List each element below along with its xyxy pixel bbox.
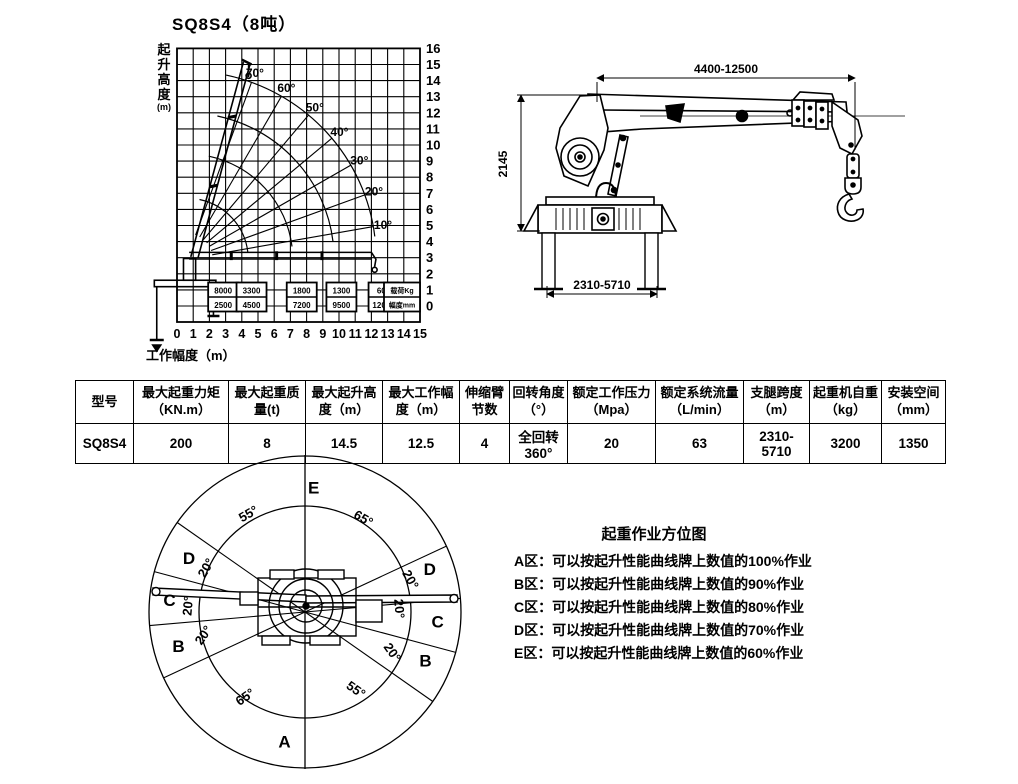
x-axis-label: 工作幅度（m） xyxy=(146,345,236,364)
chart-title: SQ8S4（8吨） xyxy=(172,10,296,35)
x-tick-label: 12 xyxy=(364,327,378,341)
x-tick-label: 10 xyxy=(332,327,346,341)
y-tick-label: 12 xyxy=(426,105,440,120)
spec-header-cell: 回转角度 （°） xyxy=(510,381,568,424)
boom-angle-label: 30° xyxy=(350,153,368,167)
zone-letter: C xyxy=(432,612,444,631)
spec-value-cell: 20 xyxy=(568,424,656,464)
boom-angle-label: 60° xyxy=(277,81,295,95)
y-tick-label: 8 xyxy=(426,170,433,185)
y-tick-label: 0 xyxy=(426,299,433,314)
x-tick-label: 7 xyxy=(287,327,294,341)
x-tick-label: 14 xyxy=(397,327,411,341)
spec-header-cell: 型号 xyxy=(76,381,134,424)
load-box: 80002500 xyxy=(208,283,238,312)
load-box: 33004500 xyxy=(237,283,267,312)
zone-letter: B xyxy=(172,637,184,656)
load-kg-value: 1300 xyxy=(333,287,351,296)
y-tick-label: 3 xyxy=(426,250,433,265)
load-box: 18007200 xyxy=(287,283,317,312)
dim-height: 2145 xyxy=(496,150,510,177)
zone-labels: EDCBADCB55°65°20°20°20°20°20°20°65°55° xyxy=(163,478,443,751)
y-tick-label: 15 xyxy=(426,57,440,72)
zone-note: B区：可以按起升性能曲线牌上数值的90%作业 xyxy=(514,573,812,596)
zone-legend-title: 起重作业方位图 xyxy=(504,523,804,544)
spec-header-cell: 安装空间 （mm） xyxy=(882,381,946,424)
radius-mm-value: 4500 xyxy=(243,301,261,310)
zone-angle-label: 55° xyxy=(236,502,261,525)
zone-letter: A xyxy=(278,732,290,751)
zone-diagram: EDCBADCB55°65°20°20°20°20°20°20°65°55° xyxy=(115,450,505,784)
y-tick-label: 13 xyxy=(426,89,440,104)
dim-boom-length: 4400-12500 xyxy=(694,62,758,76)
y-tick-label: 9 xyxy=(426,154,433,169)
x-tick-label: 5 xyxy=(255,327,262,341)
boom-angle-label: 10° xyxy=(374,218,392,232)
x-tick-label: 0 xyxy=(174,327,181,341)
y-tick-label: 7 xyxy=(426,186,433,201)
spec-header-cell: 额定工作压力 （Mpa） xyxy=(568,381,656,424)
zone-note: A区：可以按起升性能曲线牌上数值的100%作业 xyxy=(514,550,812,573)
x-tick-label: 15 xyxy=(413,327,427,341)
zone-letter: D xyxy=(424,560,436,579)
load-kg-value: 8000 xyxy=(214,287,232,296)
y-tick-label: 10 xyxy=(426,138,440,153)
y-tick-label: 16 xyxy=(426,41,440,56)
load-kg-value: 1800 xyxy=(293,287,311,296)
spec-header-cell: 最大起重力矩 （KN.m） xyxy=(134,381,229,424)
spec-value-cell: 全回转 360° xyxy=(510,424,568,464)
spec-header-row: 型号最大起重力矩 （KN.m）最大起重质 量(t)最大起升高 度（m）最大工作幅… xyxy=(76,381,946,424)
x-tick-label: 3 xyxy=(222,327,229,341)
zone-letter: B xyxy=(419,652,431,671)
zone-notes: A区：可以按起升性能曲线牌上数值的100%作业B区：可以按起升性能曲线牌上数值的… xyxy=(514,550,812,665)
y-tick-label: 5 xyxy=(426,218,433,233)
legend-radius-label: 幅度mm xyxy=(389,301,415,310)
load-box: 13009500 xyxy=(326,283,356,312)
load-box-legend: 载荷Kg幅度mm xyxy=(384,283,420,312)
legend-load-label: 载荷Kg xyxy=(390,286,413,295)
zone-angle-label: 20° xyxy=(381,640,405,665)
x-tick-label: 9 xyxy=(319,327,326,341)
x-tick-label: 1 xyxy=(190,327,197,341)
radius-mm-value: 9500 xyxy=(333,301,351,310)
spec-header-cell: 最大工作幅 度（m） xyxy=(383,381,460,424)
boom-angle-label: 50° xyxy=(306,101,324,115)
zone-note: E区：可以按起升性能曲线牌上数值的60%作业 xyxy=(514,642,812,665)
crane-side-view: 4400-1250021452310-5710 xyxy=(488,40,920,310)
zone-note: D区：可以按起升性能曲线牌上数值的70%作业 xyxy=(514,619,812,642)
x-tick-label: 13 xyxy=(381,327,395,341)
x-tick-label: 2 xyxy=(206,327,213,341)
x-tick-label: 11 xyxy=(349,327,362,341)
load-kg-value: 3300 xyxy=(243,287,261,296)
boom-angle-label: 40° xyxy=(330,125,348,139)
radius-mm-value: 2500 xyxy=(214,301,232,310)
dim-outrigger-span: 2310-5710 xyxy=(573,278,631,292)
spec-header-cell: 起重机自重 （kg） xyxy=(810,381,882,424)
spec-value-cell: 1350 xyxy=(882,424,946,464)
boom-angle-label: 20° xyxy=(365,185,383,199)
spec-header-cell: 支腿跨度 （m） xyxy=(744,381,810,424)
zone-letter: C xyxy=(163,591,175,610)
x-tick-label: 8 xyxy=(303,327,310,341)
spec-header-cell: 额定系统流量 （L/min） xyxy=(656,381,744,424)
hook-icon xyxy=(837,194,863,221)
y-tick-label: 1 xyxy=(426,282,433,297)
x-tick-label: 4 xyxy=(238,327,245,341)
zone-letter: E xyxy=(308,478,319,497)
zone-note: C区：可以按起升性能曲线牌上数值的80%作业 xyxy=(514,596,812,619)
crane-spec-sheet: SQ8S4（8吨） 起升高度(m) 0123456789101112131415… xyxy=(0,0,1018,784)
zone-angle-label: 20° xyxy=(391,598,408,619)
zone-angle-label: 20° xyxy=(192,623,216,648)
spec-header-cell: 最大起升高 度（m） xyxy=(306,381,383,424)
x-tick-label: 6 xyxy=(271,327,278,341)
zone-angle-label: 65° xyxy=(351,507,376,530)
y-tick-label: 6 xyxy=(426,202,433,217)
spec-value-cell: 2310-5710 xyxy=(744,424,810,464)
load-chart: 0123456789101112131415160123456789101112… xyxy=(148,36,460,370)
zone-angle-label: 20° xyxy=(179,595,196,616)
crane-body xyxy=(524,92,905,289)
spec-value-cell: 3200 xyxy=(810,424,882,464)
y-tick-label: 14 xyxy=(426,73,441,88)
zone-angle-label: 20° xyxy=(194,556,217,581)
spec-header-cell: 最大起重质 量(t) xyxy=(229,381,306,424)
spec-value-cell: 63 xyxy=(656,424,744,464)
zone-letter: D xyxy=(183,549,195,568)
y-tick-label: 4 xyxy=(426,234,434,249)
zone-angle-label: 55° xyxy=(344,678,369,702)
y-tick-label: 11 xyxy=(426,121,440,136)
spec-header-cell: 伸缩臂 节数 xyxy=(460,381,510,424)
radius-mm-value: 7200 xyxy=(293,301,311,310)
y-tick-label: 2 xyxy=(426,266,433,281)
